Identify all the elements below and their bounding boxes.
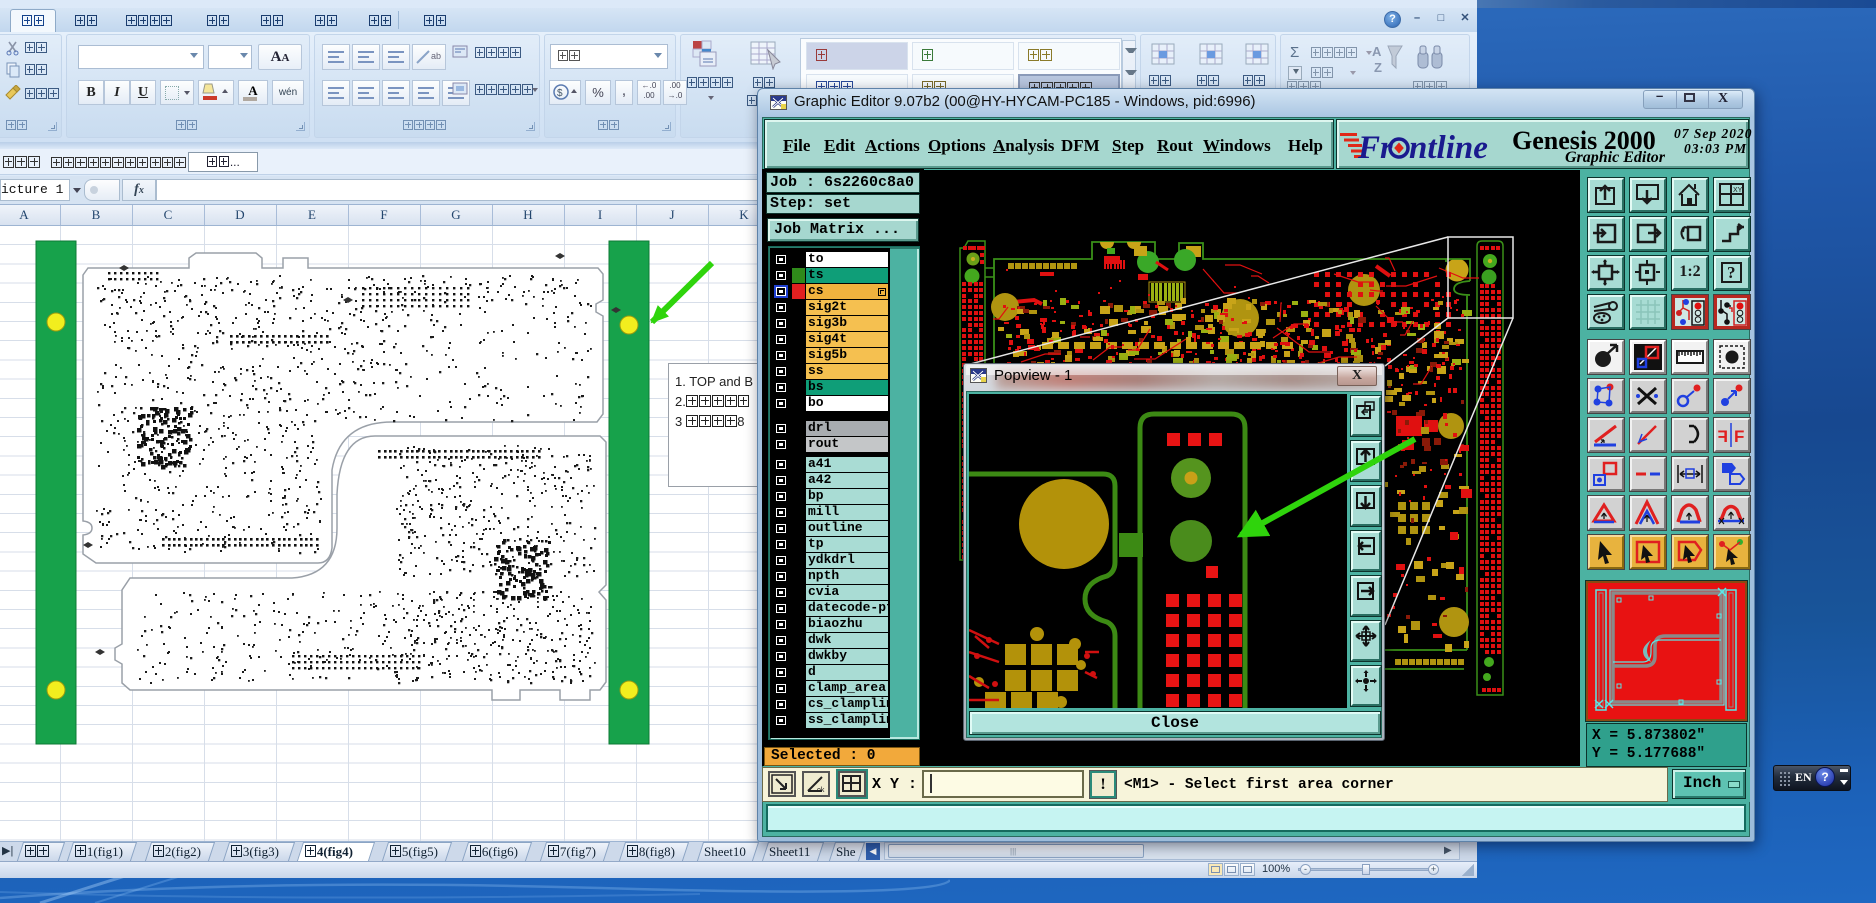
svg-text:ntline: ntline <box>1409 130 1488 165</box>
svg-text:XY: XY <box>1733 187 1743 194</box>
svg-text:ok: ok <box>817 787 825 794</box>
svg-text:Z: Z <box>1374 60 1382 75</box>
svg-text:$: $ <box>557 88 563 99</box>
svg-text:F: F <box>1718 427 1728 446</box>
svg-text:?: ? <box>1727 263 1736 282</box>
svg-text:F: F <box>1734 427 1744 446</box>
svg-text:ab: ab <box>431 51 441 61</box>
svg-text:A: A <box>1372 44 1382 59</box>
